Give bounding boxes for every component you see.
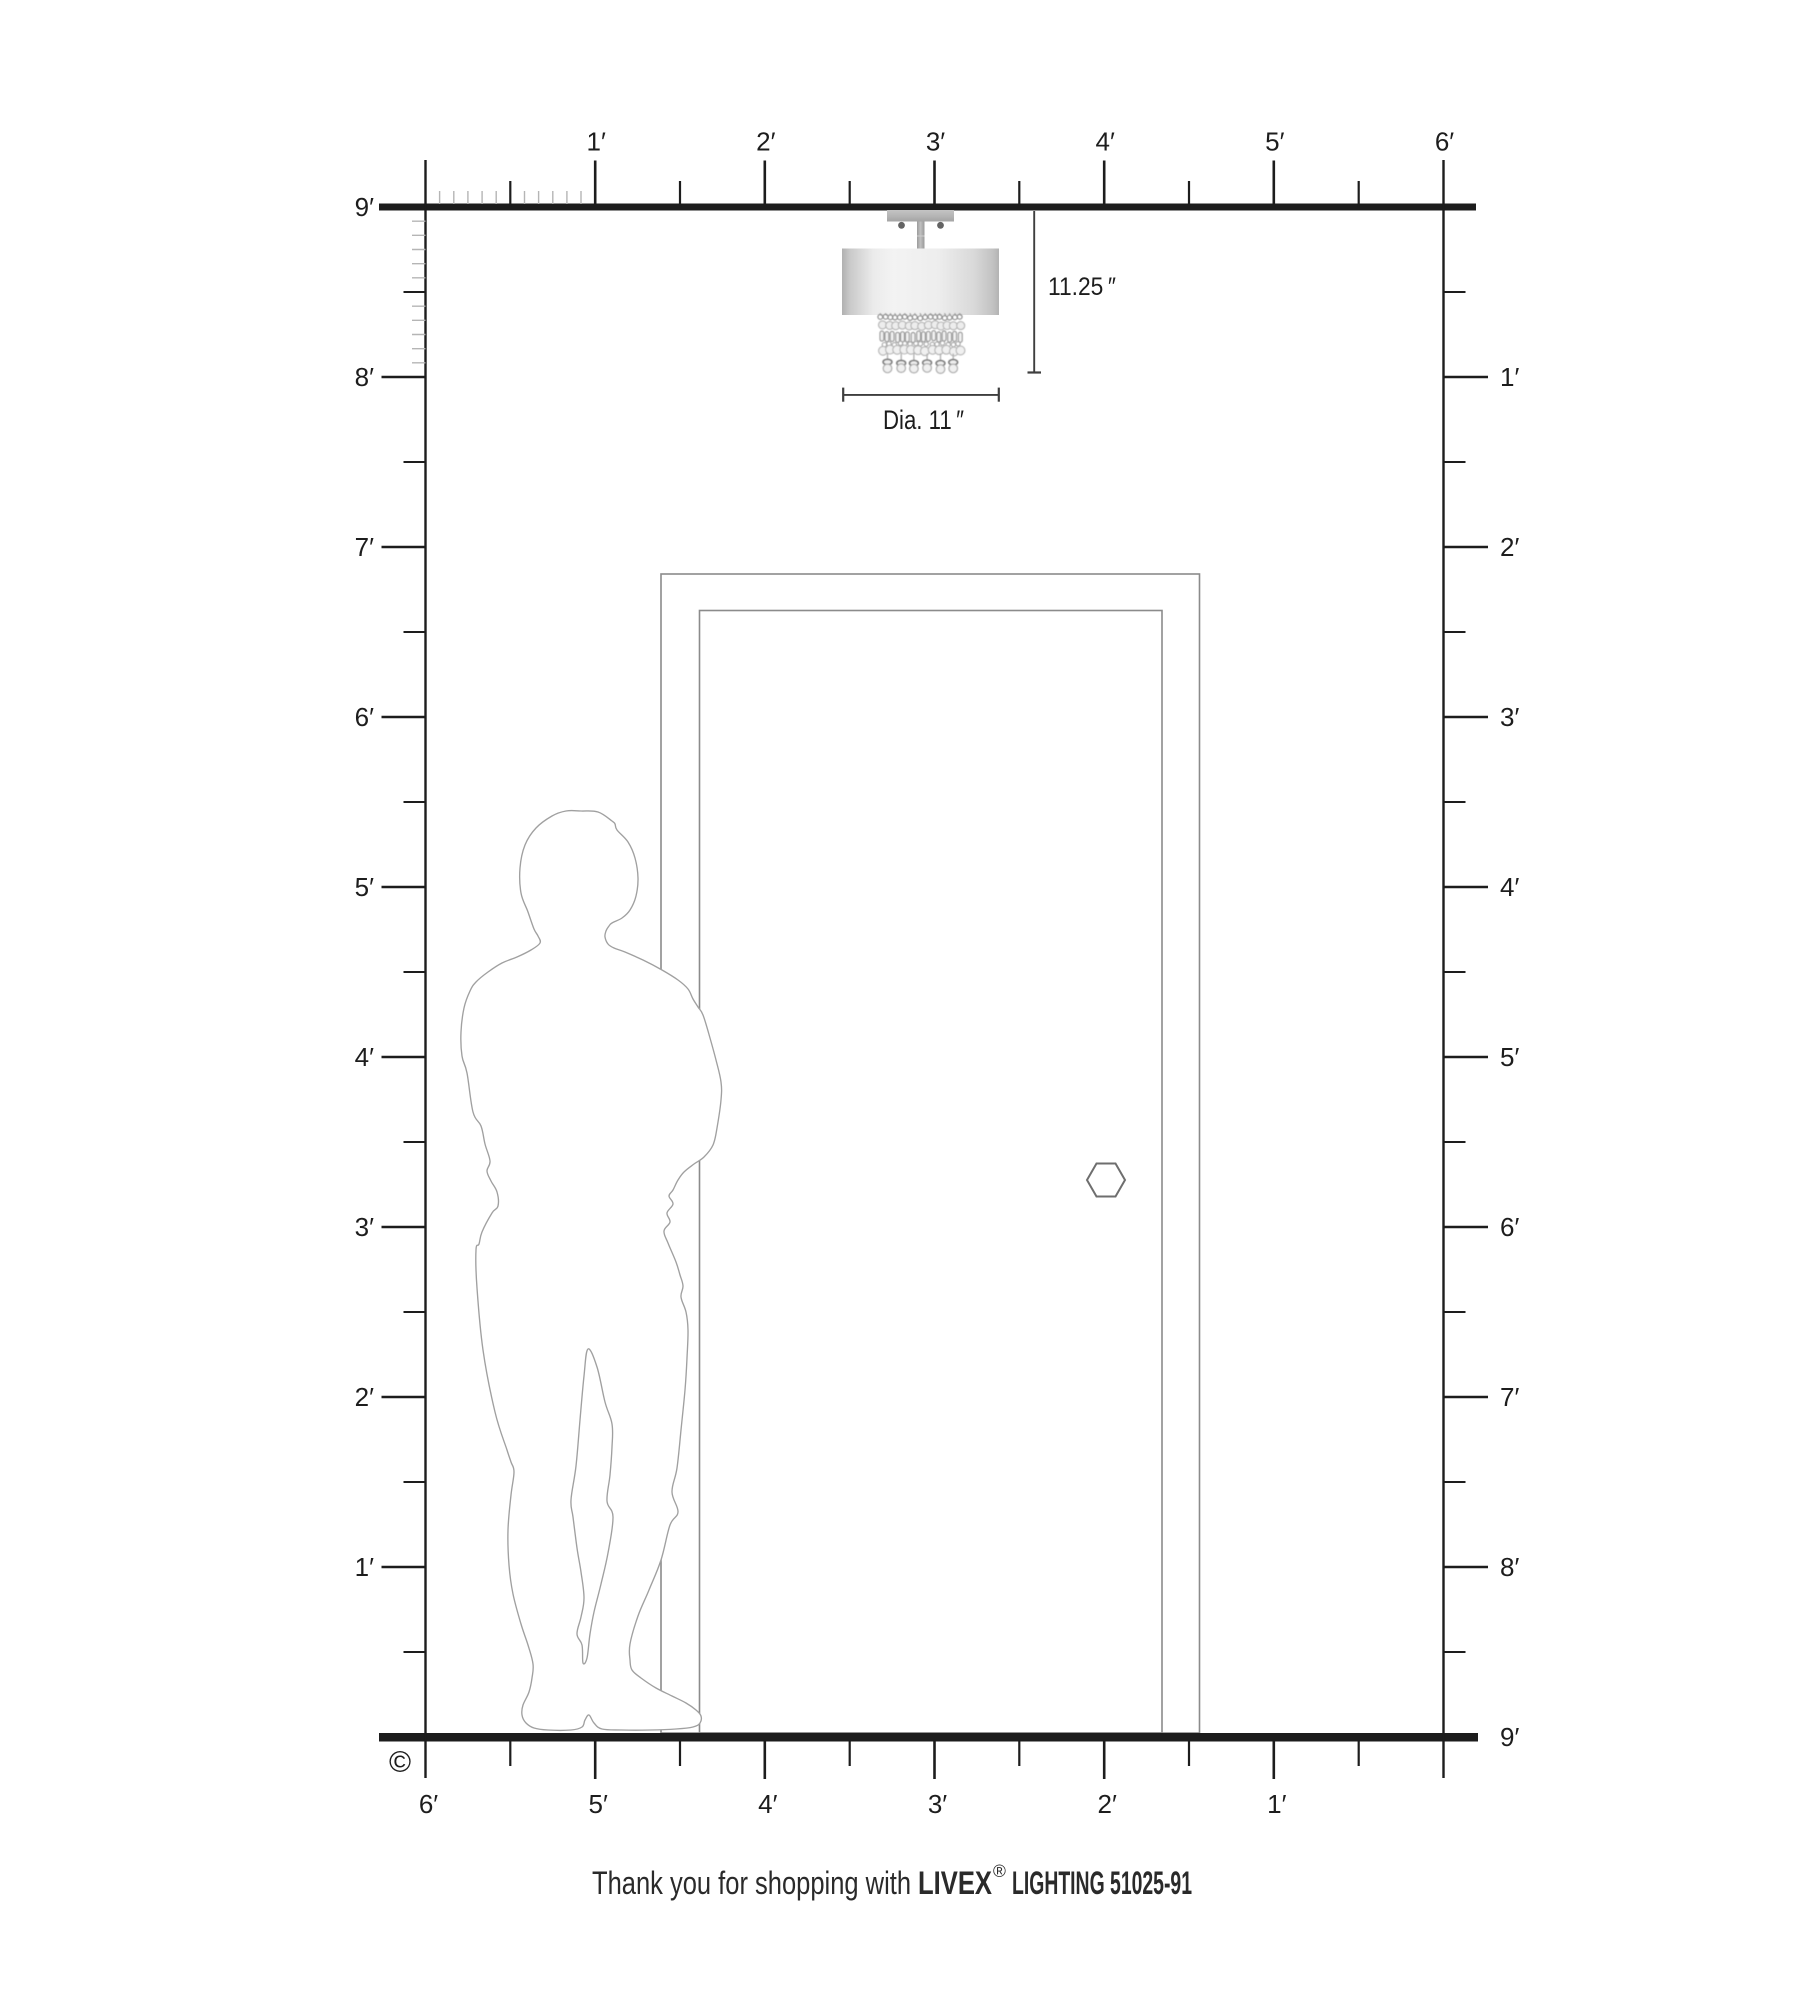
svg-text:Thank you for shopping with: Thank you for shopping with (592, 1865, 911, 1901)
svg-text:7′: 7′ (355, 532, 374, 562)
svg-text:1′: 1′ (1267, 1789, 1286, 1819)
svg-text:LIVEX: LIVEX (918, 1865, 993, 1901)
svg-text:8′: 8′ (1500, 1552, 1519, 1582)
svg-text:3′: 3′ (928, 1789, 947, 1819)
svg-text:2′: 2′ (355, 1382, 374, 1412)
svg-text:6′: 6′ (1435, 127, 1454, 157)
svg-text:3′: 3′ (355, 1212, 374, 1242)
svg-text:3′: 3′ (926, 127, 945, 157)
svg-text:1′: 1′ (355, 1552, 374, 1582)
svg-text:4′: 4′ (1500, 872, 1519, 902)
svg-text:2′: 2′ (756, 127, 775, 157)
svg-text:4′: 4′ (1096, 127, 1115, 157)
svg-text:©: © (389, 1746, 411, 1779)
svg-text:8′: 8′ (355, 362, 374, 392)
svg-text:1′: 1′ (587, 127, 606, 157)
svg-text:1′: 1′ (1500, 362, 1519, 392)
svg-text:5′: 5′ (589, 1789, 608, 1819)
svg-text:4′: 4′ (355, 1042, 374, 1072)
svg-text:4′: 4′ (758, 1789, 777, 1819)
svg-text:5′: 5′ (1265, 127, 1284, 157)
svg-text:2′: 2′ (1098, 1789, 1117, 1819)
svg-text:®: ® (993, 1861, 1006, 1881)
svg-text:7′: 7′ (1500, 1382, 1519, 1412)
svg-text:9′: 9′ (355, 192, 374, 222)
svg-text:5′: 5′ (1500, 1042, 1519, 1072)
svg-text:3′: 3′ (1500, 702, 1519, 732)
svg-text:6′: 6′ (1500, 1212, 1519, 1242)
svg-text:11.25 ″: 11.25 ″ (1048, 273, 1116, 301)
svg-text:Dia. 11 ″: Dia. 11 ″ (883, 405, 964, 435)
svg-text:5′: 5′ (355, 872, 374, 902)
svg-text:LIGHTING 51025-91: LIGHTING 51025-91 (1012, 1865, 1192, 1901)
svg-text:9′: 9′ (1500, 1722, 1519, 1752)
svg-text:2′: 2′ (1500, 532, 1519, 562)
svg-text:6′: 6′ (419, 1789, 438, 1819)
svg-text:6′: 6′ (355, 702, 374, 732)
